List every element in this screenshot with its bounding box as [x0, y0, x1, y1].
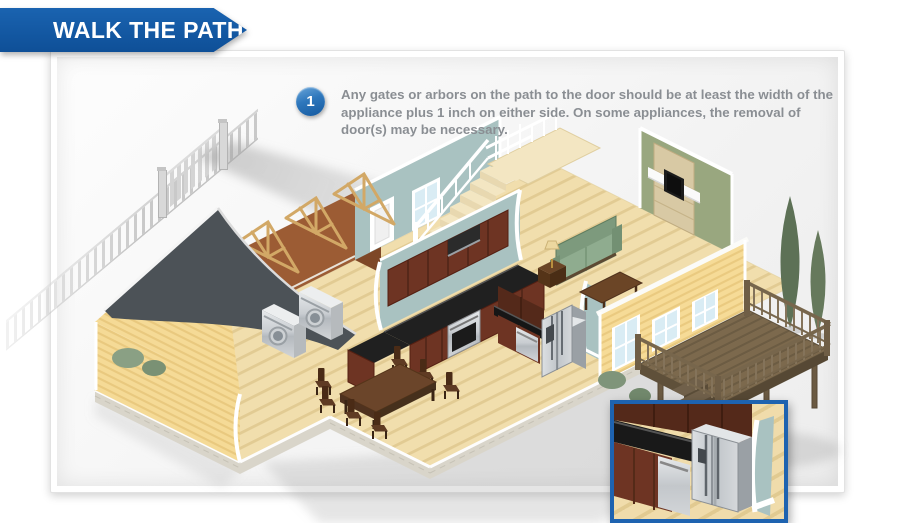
refrigerator-detail-illustration [614, 404, 784, 519]
detail-inset [610, 400, 788, 523]
inset-dishwasher [658, 456, 690, 516]
gate-post-left [158, 170, 167, 218]
infographic-canvas: WALK THE PATH 1 Any gates or arbors on t… [0, 0, 900, 523]
title-banner-shape: WALK THE PATH [0, 8, 247, 52]
step-1-text: Any gates or arbors on the path to the d… [341, 86, 843, 139]
gate-post-right [219, 122, 228, 170]
page-title: WALK THE PATH [53, 17, 244, 43]
step-1-badge: 1 [296, 87, 325, 116]
title-banner: WALK THE PATH [0, 8, 247, 52]
inset-refrigerator [692, 424, 752, 512]
